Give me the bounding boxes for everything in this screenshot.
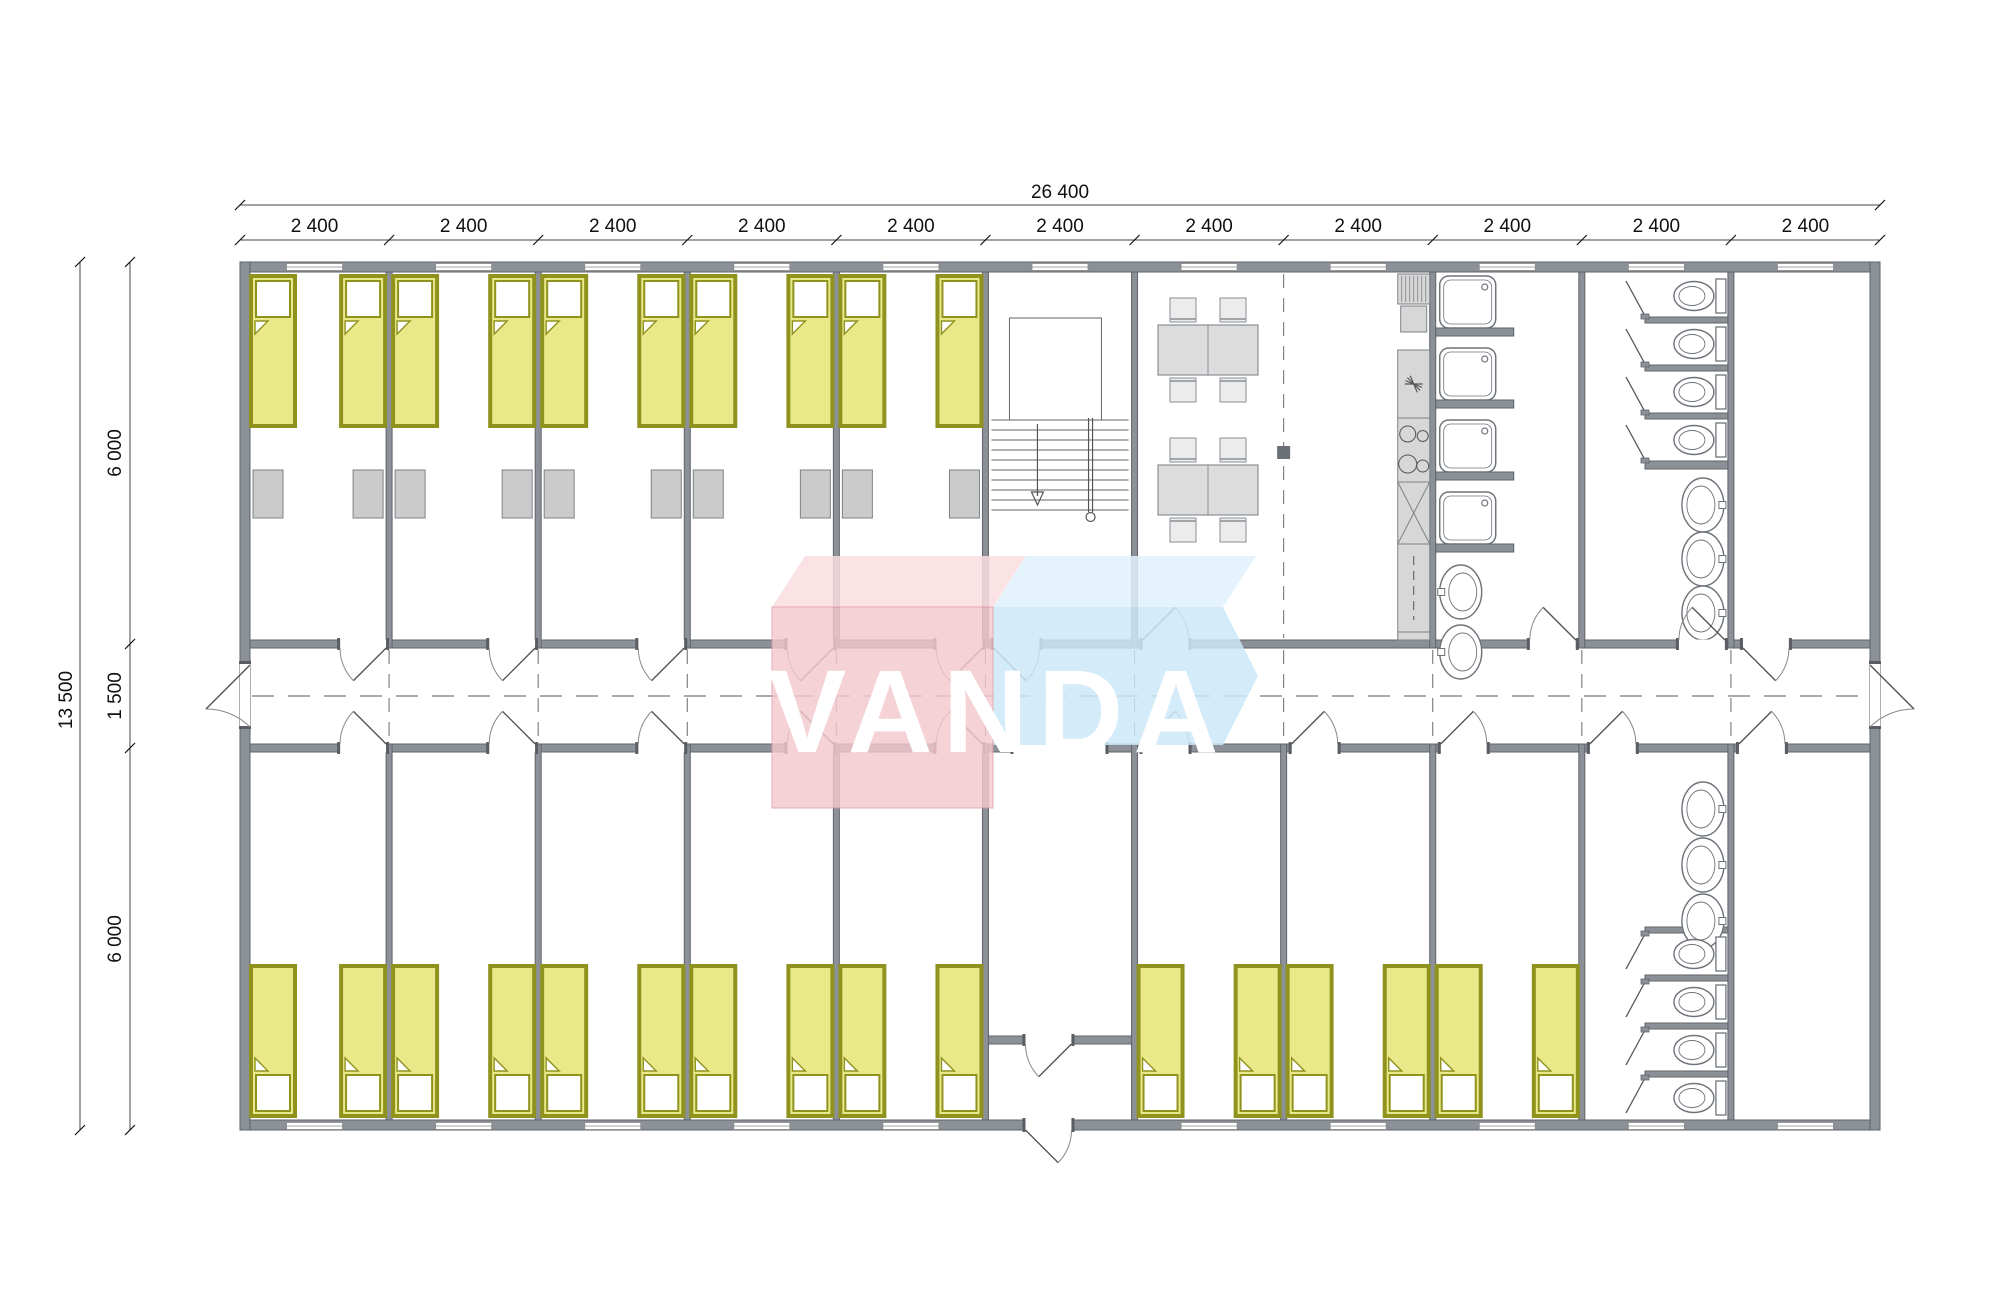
window: [585, 264, 641, 271]
toilet: [1674, 279, 1726, 313]
stall-door: [1626, 281, 1649, 319]
window: [436, 1123, 492, 1130]
window: [883, 264, 939, 271]
window: [1777, 1123, 1833, 1130]
floor-plan-drawing: 26 400 13 500 6 000 1 500 6 000 2 4002 4…: [0, 0, 2000, 1312]
bed: [251, 276, 295, 426]
door: [1022, 1118, 1074, 1163]
toilet: [1674, 937, 1726, 971]
window: [734, 264, 790, 271]
dim-module-label: 2 400: [440, 216, 488, 237]
window: [1628, 264, 1684, 271]
bed: [840, 966, 884, 1116]
module-dimension-labels: 2 4002 4002 4002 4002 4002 4002 4002 400…: [291, 216, 1829, 237]
door: [635, 638, 687, 681]
toilet: [1674, 1081, 1726, 1115]
stall-door: [1626, 979, 1649, 1017]
window: [883, 1123, 939, 1130]
bed: [393, 276, 437, 426]
dim-module-label: 2 400: [1036, 216, 1084, 237]
dim-module-label: 2 400: [1782, 216, 1830, 237]
toilet: [1674, 327, 1726, 361]
bed: [691, 966, 735, 1116]
dim-left-segment-bottom: 6 000: [105, 915, 126, 963]
bed: [341, 966, 385, 1116]
staircase: [991, 318, 1128, 522]
wash-basin: [1682, 532, 1726, 586]
dim-module-label: 2 400: [1483, 216, 1531, 237]
logo-text: VANDA: [768, 646, 1229, 778]
corridor-exit-door-right: [1869, 661, 1914, 729]
bed: [542, 966, 586, 1116]
bed: [691, 276, 735, 426]
wardrobe: [253, 470, 283, 518]
door: [1736, 711, 1788, 754]
dim-module-label: 2 400: [291, 216, 339, 237]
kitchen-counter: [1398, 274, 1430, 640]
window: [1032, 264, 1088, 271]
wardrobe: [544, 470, 574, 518]
window: [1181, 264, 1237, 271]
dim-module-label: 2 400: [1633, 216, 1681, 237]
shower-cabin: [1440, 420, 1496, 472]
stall-door: [1626, 931, 1649, 969]
wardrobe: [395, 470, 425, 518]
toilet: [1674, 423, 1726, 457]
window: [1628, 1123, 1684, 1130]
window: [585, 1123, 641, 1130]
bed: [1385, 966, 1429, 1116]
stair-flight: [991, 318, 1128, 522]
stall-door: [1626, 329, 1649, 367]
door: [337, 638, 389, 681]
wash-basin: [1682, 478, 1726, 532]
window: [436, 264, 492, 271]
bed: [937, 276, 981, 426]
wardrobe: [800, 470, 830, 518]
window: [734, 1123, 790, 1130]
floor-plan-canvas: 26 400 13 500 6 000 1 500 6 000 2 4002 4…: [0, 0, 2000, 1312]
bed: [251, 966, 295, 1116]
bed: [1288, 966, 1332, 1116]
bed: [1534, 966, 1578, 1116]
wardrobe: [651, 470, 681, 518]
door: [635, 711, 687, 754]
toilet: [1674, 375, 1726, 409]
column-post: [1277, 446, 1290, 459]
wash-basin: [1438, 565, 1482, 619]
shower-cabin: [1440, 492, 1496, 544]
dim-total-height-label: 13 500: [56, 671, 77, 729]
window: [287, 1123, 343, 1130]
shower-cabin: [1440, 276, 1496, 328]
bed: [639, 966, 683, 1116]
bed: [788, 966, 832, 1116]
dining-table-group: [1158, 298, 1258, 402]
dim-module-label: 2 400: [738, 216, 786, 237]
bed: [341, 276, 385, 426]
door: [1527, 607, 1579, 650]
door: [337, 711, 389, 754]
door: [486, 638, 538, 681]
window: [287, 264, 343, 271]
window: [1777, 264, 1833, 271]
shower-cabin: [1440, 348, 1496, 400]
bed: [542, 276, 586, 426]
window: [1181, 1123, 1237, 1130]
bed: [1236, 966, 1280, 1116]
dim-module-label: 2 400: [1334, 216, 1382, 237]
bed: [490, 966, 534, 1116]
bed: [937, 966, 981, 1116]
bed: [393, 966, 437, 1116]
door: [1438, 711, 1490, 754]
bed: [1437, 966, 1481, 1116]
wardrobe: [693, 470, 723, 518]
wash-basin: [1438, 625, 1482, 679]
dim-module-label: 2 400: [887, 216, 935, 237]
stall-door: [1626, 377, 1649, 415]
wardrobe: [949, 470, 979, 518]
dim-module-label: 2 400: [589, 216, 637, 237]
wardrobe: [842, 470, 872, 518]
wardrobe: [353, 470, 383, 518]
wash-basin: [1682, 586, 1726, 640]
corridor-exit-door-left: [206, 661, 251, 729]
bed: [840, 276, 884, 426]
logo-pink-top-face: [772, 556, 1026, 607]
bed: [490, 276, 534, 426]
window: [1479, 1123, 1535, 1130]
window: [1330, 264, 1386, 271]
wash-basin: [1682, 782, 1726, 836]
toilet: [1674, 1033, 1726, 1067]
bed: [788, 276, 832, 426]
stall-door: [1626, 1027, 1649, 1065]
dim-left-segment-mid: 1 500: [105, 672, 126, 720]
dining-table-group: [1158, 438, 1258, 542]
door: [1587, 711, 1639, 754]
wash-basin: [1682, 838, 1726, 892]
window: [1479, 264, 1535, 271]
door: [1740, 638, 1792, 681]
stall-door: [1626, 425, 1649, 463]
door: [1022, 1034, 1074, 1077]
door: [1289, 711, 1341, 754]
dim-left-segment-top: 6 000: [105, 429, 126, 477]
dim-total-width-label: 26 400: [1031, 182, 1089, 203]
bed: [1139, 966, 1183, 1116]
toilet: [1674, 985, 1726, 1019]
logo-blue-top-face: [993, 556, 1256, 607]
stall-door: [1626, 1075, 1649, 1113]
vanda-watermark: VANDA: [768, 556, 1258, 808]
door: [486, 711, 538, 754]
dim-module-label: 2 400: [1185, 216, 1233, 237]
wardrobe: [502, 470, 532, 518]
window: [1330, 1123, 1386, 1130]
bed: [639, 276, 683, 426]
